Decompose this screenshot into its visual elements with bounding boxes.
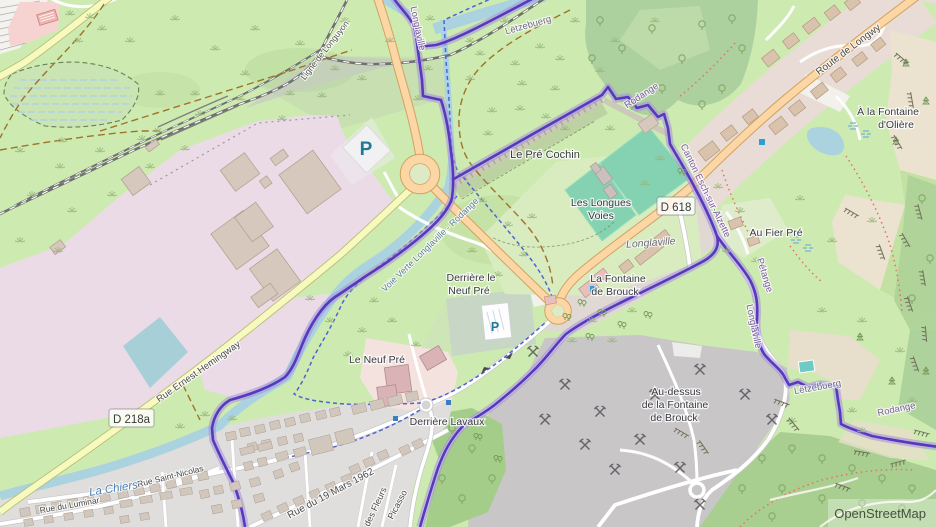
svg-text:P: P [491, 320, 499, 334]
svg-text:Le Neuf Pré: Le Neuf Pré [349, 354, 405, 366]
svg-text:P: P [360, 139, 373, 160]
svg-text:La Fontaine: La Fontaine [590, 273, 646, 285]
svg-text:Au Fier Pré: Au Fier Pré [749, 227, 802, 239]
svg-text:Le Pré Cochin: Le Pré Cochin [510, 149, 580, 161]
svg-text:de la Fontaine: de la Fontaine [642, 399, 709, 411]
svg-text:D 218a: D 218a [113, 414, 151, 426]
svg-text:D 618: D 618 [661, 202, 692, 214]
svg-text:Les Longues: Les Longues [571, 197, 631, 209]
svg-text:de Brouck: de Brouck [650, 412, 698, 424]
svg-text:Neuf Pré: Neuf Pré [448, 285, 490, 297]
svg-text:Au-dessus: Au-dessus [651, 386, 701, 398]
svg-text:Derrière le: Derrière le [446, 272, 495, 284]
svg-text:OpenStreetMap: OpenStreetMap [834, 506, 926, 521]
svg-text:d'Olière: d'Olière [878, 119, 914, 131]
svg-text:Voies: Voies [588, 210, 614, 222]
svg-text:de Brouck: de Brouck [591, 286, 639, 298]
svg-text:Derrière Lavaux: Derrière Lavaux [410, 416, 485, 428]
svg-text:À la Fontaine: À la Fontaine [857, 105, 919, 118]
